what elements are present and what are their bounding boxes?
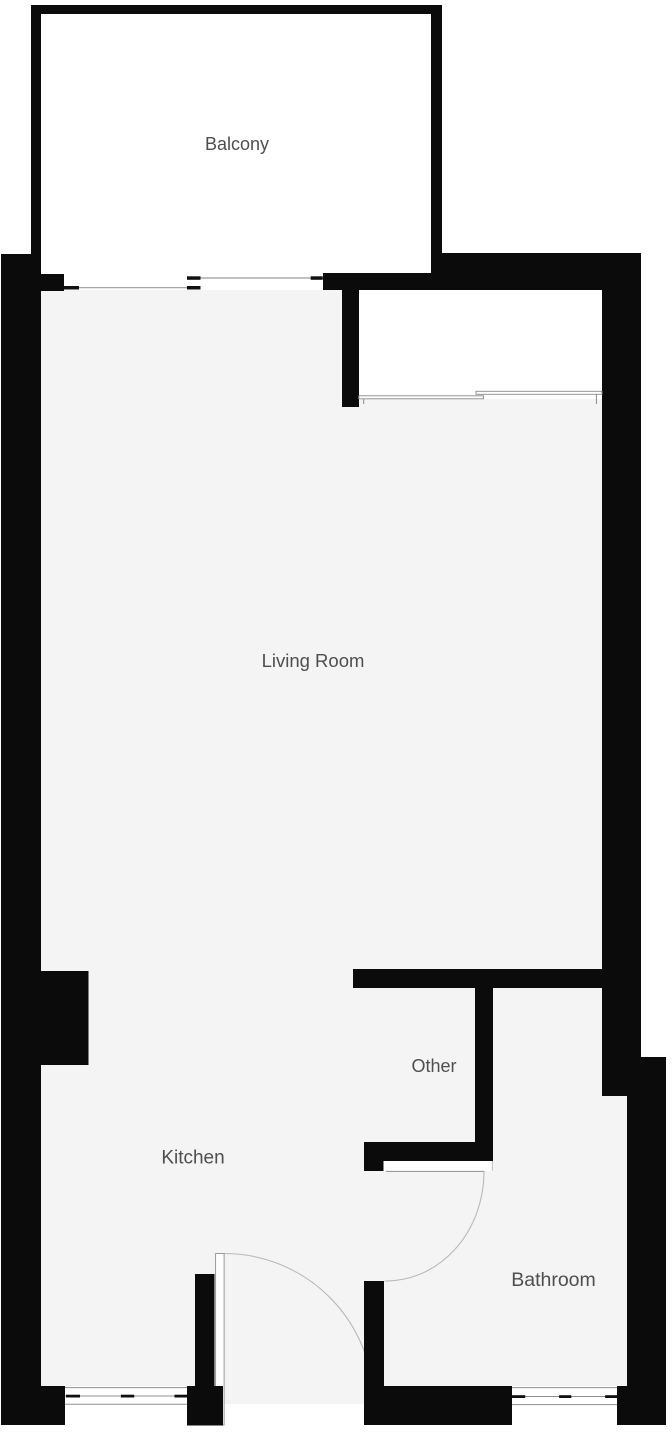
- svg-text:Bathroom: Bathroom: [511, 1269, 596, 1291]
- svg-text:Other: Other: [411, 1056, 456, 1076]
- svg-text:Kitchen: Kitchen: [161, 1148, 224, 1169]
- svg-text:Balcony: Balcony: [205, 134, 269, 154]
- svg-text:Living Room: Living Room: [262, 650, 365, 671]
